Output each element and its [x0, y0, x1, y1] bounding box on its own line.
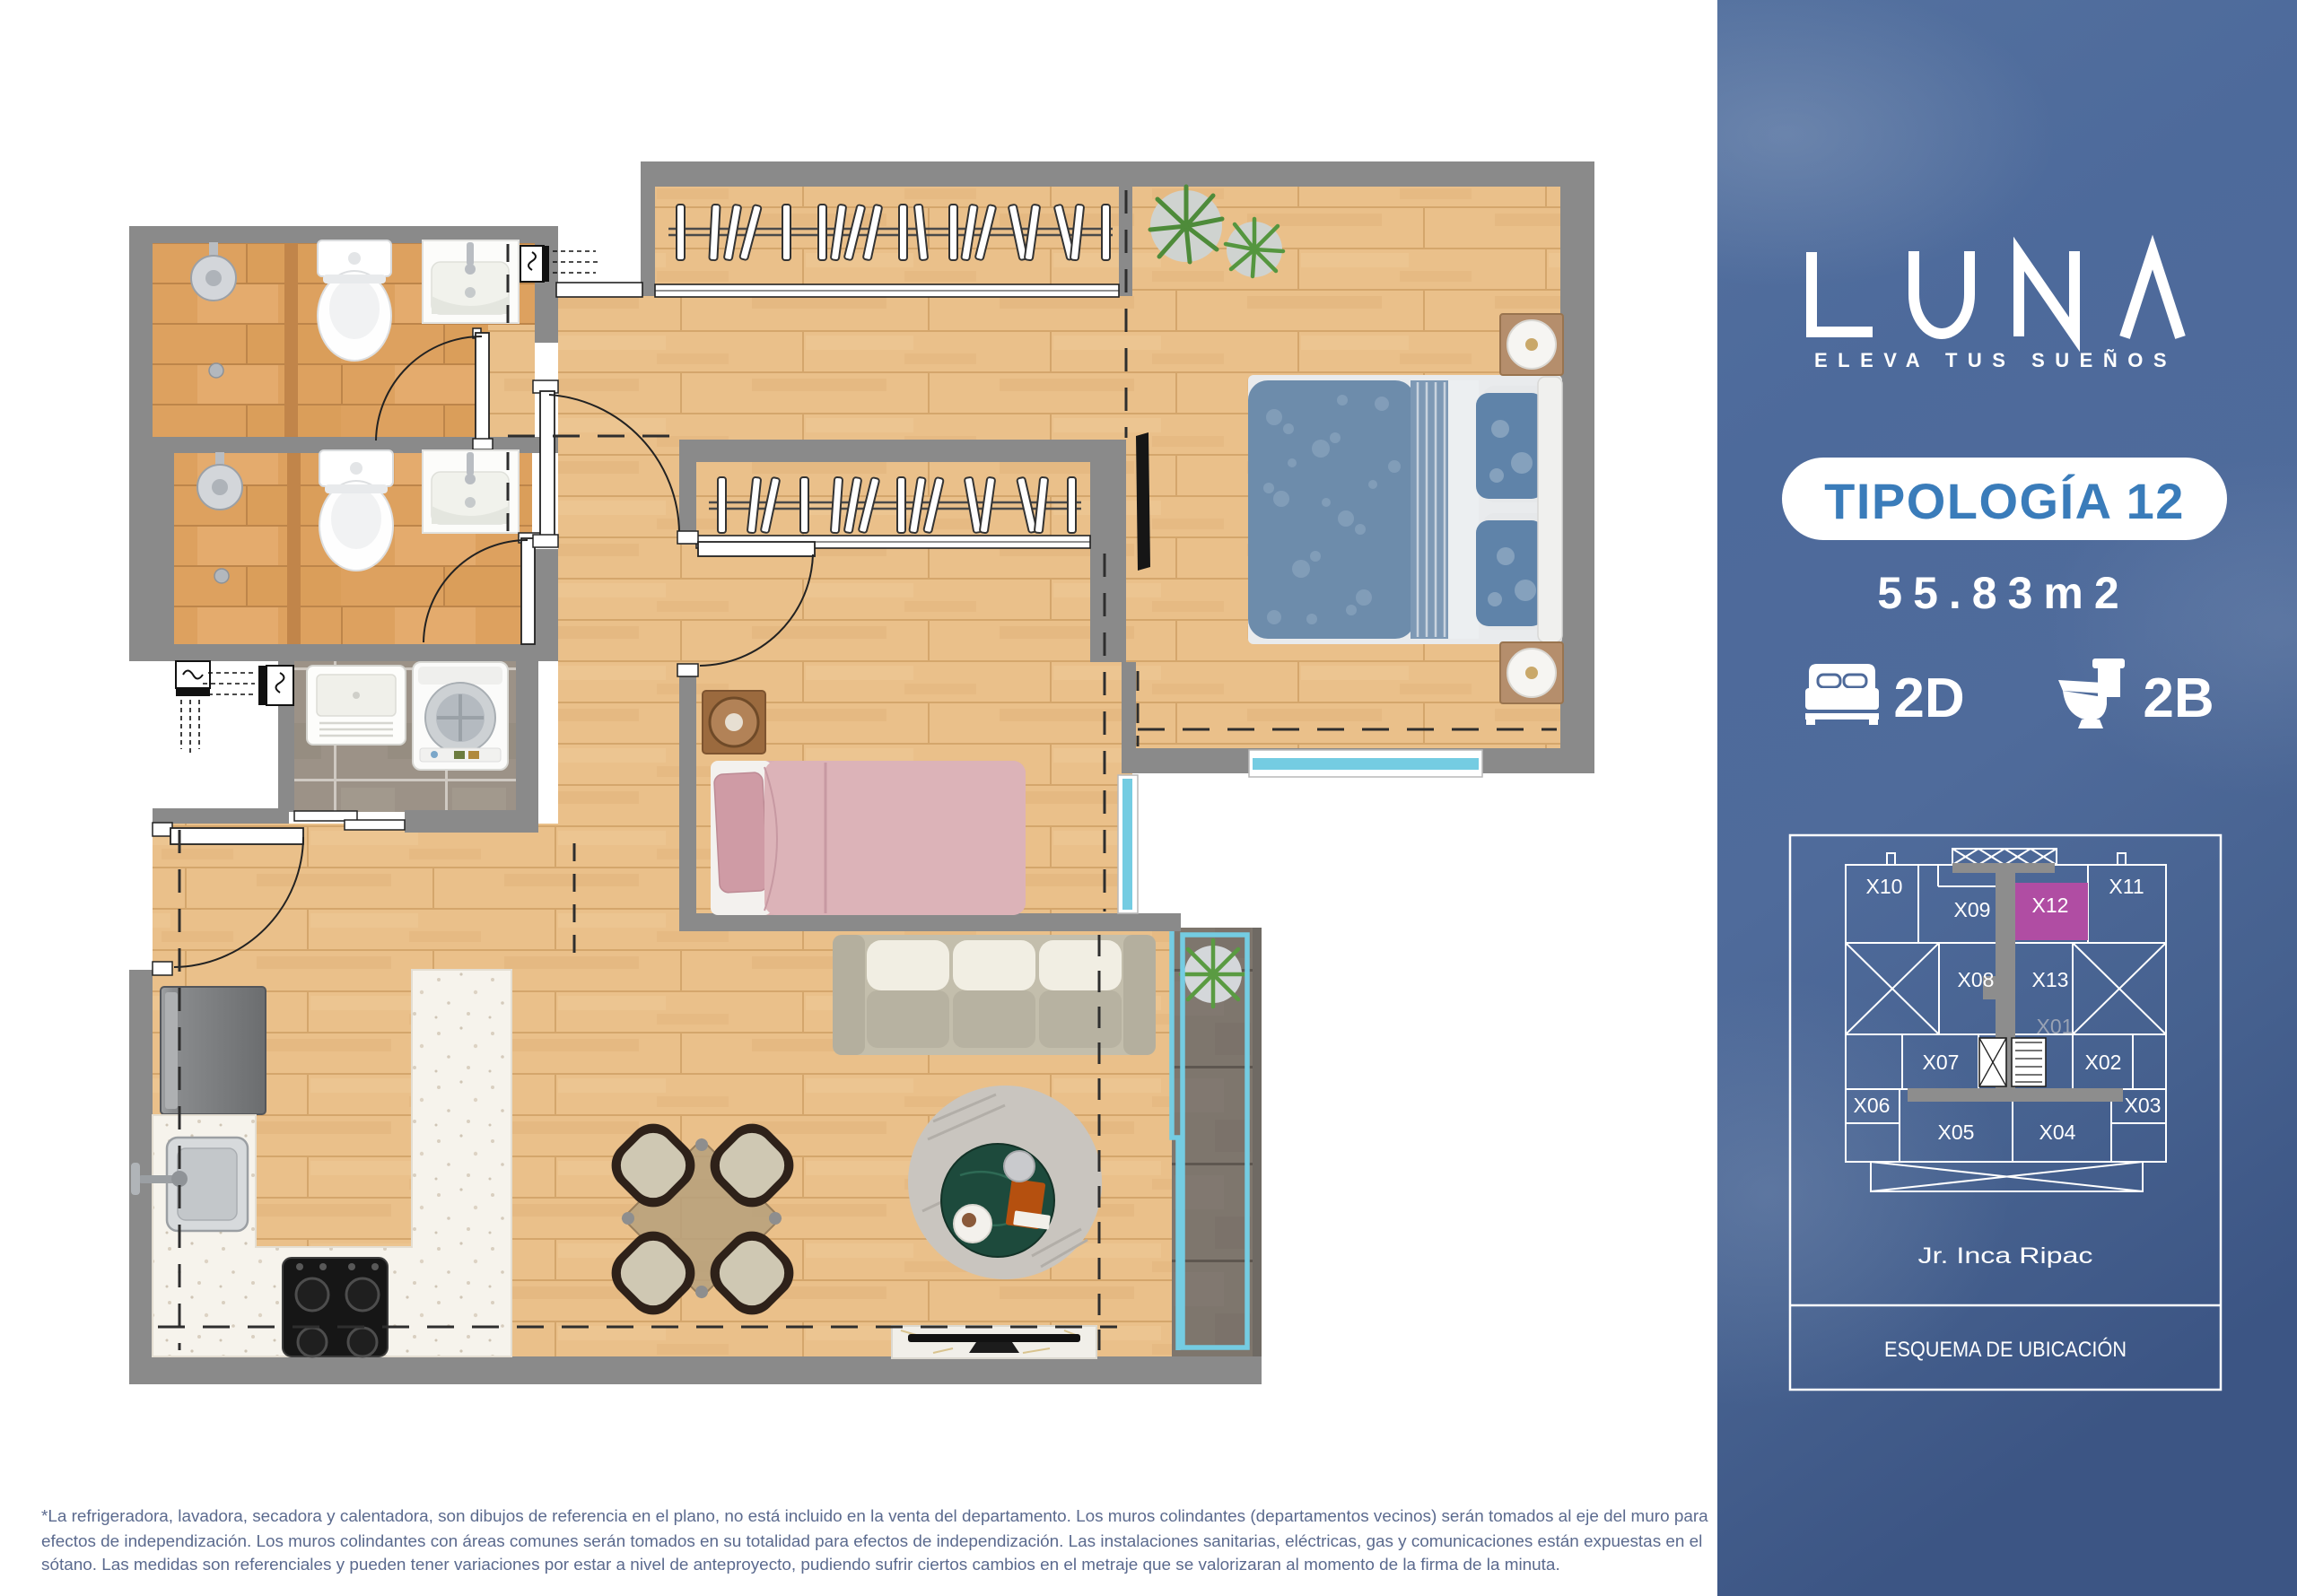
svg-text:X09: X09 [1954, 898, 1991, 921]
svg-text:sótano. Las medidas son refere: sótano. Las medidas son referenciales y … [41, 1556, 1560, 1574]
svg-text:X08: X08 [1958, 968, 1995, 991]
svg-text:2D: 2D [1893, 667, 1964, 729]
svg-text:*La refrigeradora, lavadora, s: *La refrigeradora, lavadora, secadora y … [41, 1507, 1708, 1526]
svg-text:X10: X10 [1866, 875, 1903, 898]
svg-text:X01: X01 [2037, 1015, 2074, 1038]
svg-text:X06: X06 [1854, 1094, 1891, 1117]
svg-text:ESQUEMA DE UBICACIÓN: ESQUEMA DE UBICACIÓN [1884, 1338, 2127, 1362]
svg-text:Jr. Inca Ripac: Jr. Inca Ripac [1918, 1243, 2093, 1269]
svg-text:X04: X04 [2039, 1121, 2076, 1144]
svg-text:X11: X11 [2109, 875, 2144, 898]
svg-text:X13: X13 [2032, 968, 2069, 991]
svg-text:2B: 2B [2143, 667, 2214, 729]
svg-text:TIPOLOGÍA 12: TIPOLOGÍA 12 [1824, 473, 2185, 529]
svg-text:X02: X02 [2085, 1051, 2122, 1074]
svg-text:X07: X07 [1923, 1051, 1960, 1074]
svg-text:X03: X03 [2125, 1094, 2162, 1117]
svg-text:efectos de independización. Lo: efectos de independización. Los muros co… [41, 1532, 1702, 1551]
svg-text:55.83m2: 55.83m2 [1877, 568, 2129, 618]
svg-text:X12: X12 [2032, 894, 2069, 917]
svg-text:X05: X05 [1938, 1121, 1975, 1144]
svg-text:ELEVA TUS SUEÑOS: ELEVA TUS SUEÑOS [1814, 349, 2177, 371]
